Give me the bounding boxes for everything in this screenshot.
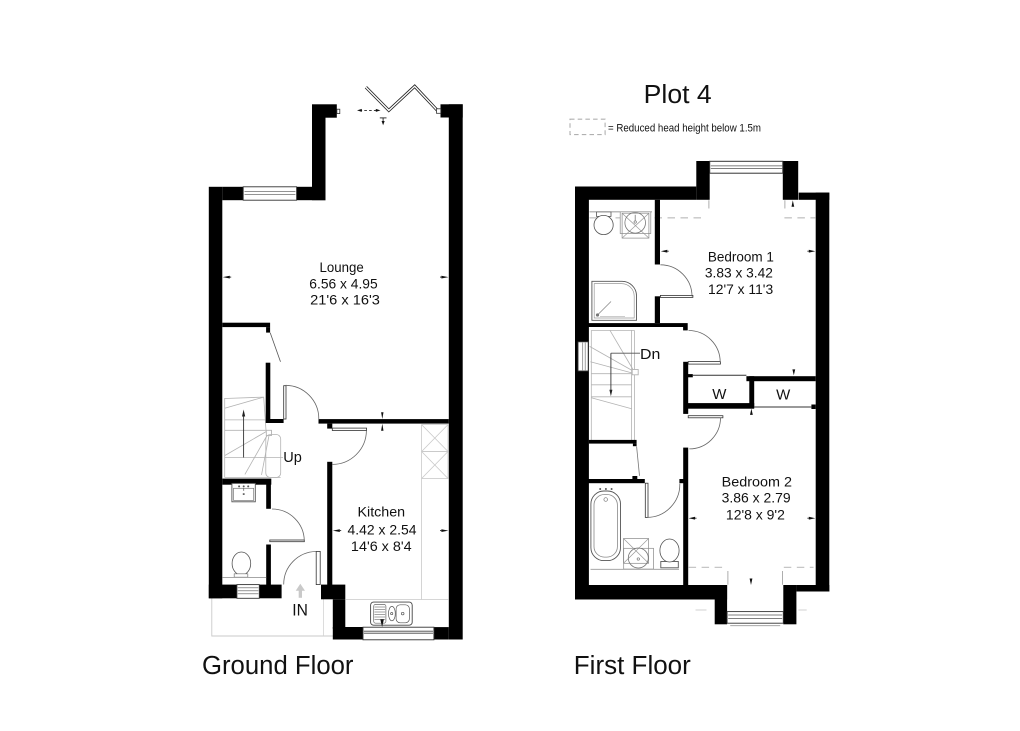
svg-text:Lounge: Lounge	[320, 260, 364, 275]
svg-text:W: W	[776, 386, 791, 403]
svg-text:= Reduced head height below 1.: = Reduced head height below 1.5m	[608, 122, 761, 134]
svg-text:3.83 x 3.42: 3.83 x 3.42	[705, 266, 773, 281]
svg-text:Kitchen: Kitchen	[358, 504, 406, 519]
svg-text:4.42 x 2.54: 4.42 x 2.54	[348, 523, 417, 538]
svg-text:21'6 x 16'3: 21'6 x 16'3	[310, 292, 380, 307]
svg-text:Up: Up	[283, 450, 302, 466]
svg-text:Ground Floor: Ground Floor	[202, 652, 354, 680]
svg-text:Plot 4: Plot 4	[644, 81, 712, 109]
svg-text:Dn: Dn	[640, 347, 660, 363]
svg-text:First Floor: First Floor	[574, 652, 692, 680]
svg-text:W: W	[712, 386, 727, 403]
svg-text:14'6 x 8'4: 14'6 x 8'4	[351, 539, 412, 554]
svg-text:Bedroom 1: Bedroom 1	[708, 250, 774, 265]
svg-text:Bedroom 2: Bedroom 2	[722, 475, 792, 490]
svg-text:3.86 x 2.79: 3.86 x 2.79	[722, 490, 791, 505]
svg-text:12'8 x 9'2: 12'8 x 9'2	[726, 508, 785, 523]
svg-text:12'7 x 11'3: 12'7 x 11'3	[708, 282, 773, 297]
svg-text:6.56 x 4.95: 6.56 x 4.95	[309, 276, 377, 291]
svg-text:IN: IN	[292, 600, 308, 619]
